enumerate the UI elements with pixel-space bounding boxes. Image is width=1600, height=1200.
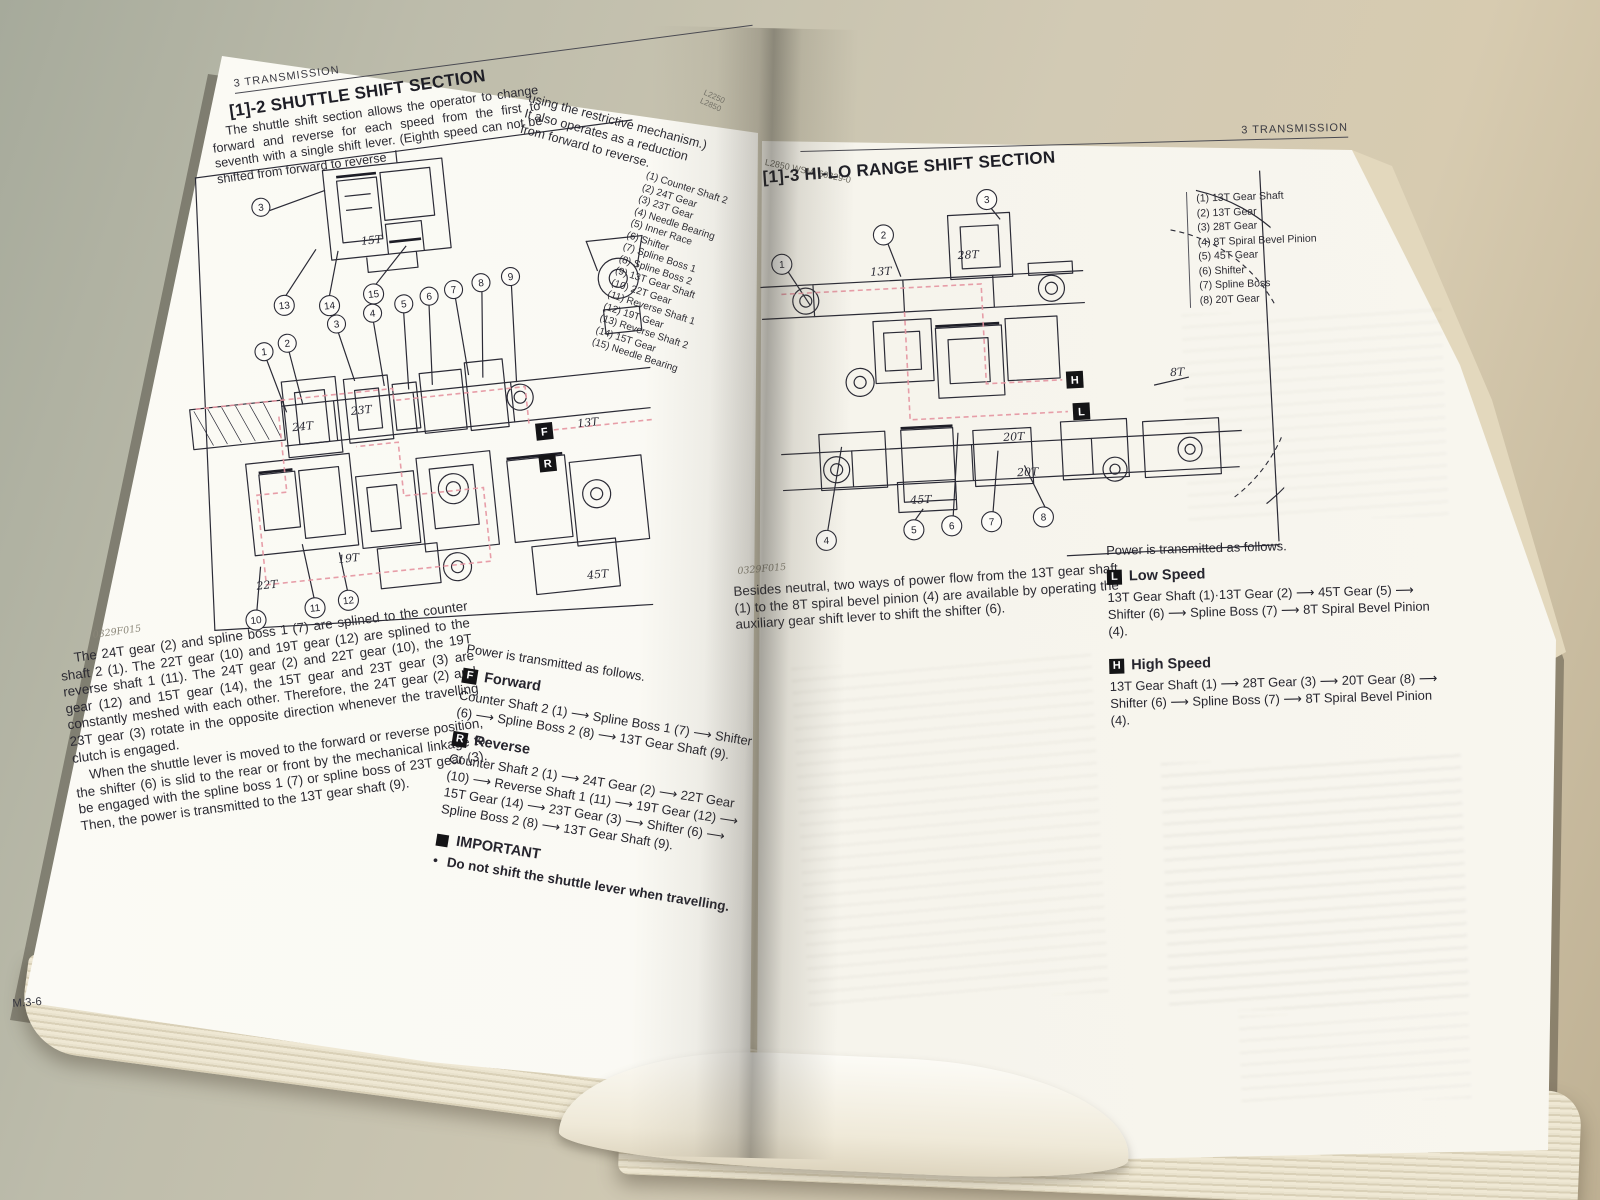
callout-6: 6	[941, 515, 962, 536]
left-page-number: M.3-6	[12, 996, 42, 1010]
badge-letter: R	[543, 458, 552, 471]
right-running-header: 3 TRANSMISSION	[1241, 122, 1348, 137]
power-flow-red-path	[781, 280, 1068, 426]
gear-label-8t: 8T	[1170, 365, 1187, 379]
callout-number: 8	[1040, 512, 1047, 523]
callout-7: 7	[981, 511, 1002, 532]
low-speed-badge: L	[1107, 570, 1122, 585]
gear-label-13t: 13T	[870, 265, 894, 279]
callout-5: 5	[394, 294, 414, 314]
bleed-through-text	[1161, 753, 1470, 1013]
gear-label-20t-upper: 20T	[1002, 430, 1027, 444]
bold-section-marks	[229, 157, 562, 485]
callout-number: 4	[823, 536, 830, 547]
callout-number: 1	[779, 260, 786, 271]
callout-15: 15	[363, 283, 385, 305]
callout-2: 2	[277, 333, 297, 353]
callout-number: 6	[949, 521, 956, 532]
callout-3-top: 3	[251, 197, 271, 217]
high-speed-chain: 13T Gear Shaft (1) ⟶ 28T Gear (3) ⟶ 20T …	[1110, 669, 1451, 729]
callout-number: 3	[984, 195, 991, 206]
callout-number: 11	[309, 603, 321, 615]
left-flow-column: Power is transmitted as follows. F Forwa…	[432, 640, 764, 915]
reverse-badge: R	[451, 731, 468, 748]
bleed-through-text	[791, 652, 1108, 1007]
callout-number: 7	[989, 517, 996, 528]
callout-5: 5	[903, 519, 924, 540]
callout-8: 8	[471, 273, 491, 293]
callout-13: 13	[273, 294, 295, 316]
callout-number: 5	[911, 525, 918, 536]
callout-number: 15	[368, 289, 381, 301]
callout-8: 8	[1033, 506, 1054, 527]
badge-letter: L	[1078, 406, 1086, 418]
gear-label-22t: 22T	[255, 577, 280, 592]
callout-7: 7	[444, 280, 464, 300]
callout-number: 13	[278, 300, 291, 312]
high-flow-badge: H	[1066, 371, 1084, 389]
gear-label-28t: 28T	[956, 248, 981, 262]
reverse-flow-badge: R	[538, 454, 557, 473]
callout-2: 2	[873, 224, 894, 245]
open-service-manual-photo: 3 TRANSMISSION [1]-2 SHUTTLE SHIFT SECTI…	[0, 0, 1600, 1200]
callout-9: 9	[501, 267, 521, 287]
callout-3: 3	[976, 189, 997, 210]
callout-number: 2	[880, 230, 887, 241]
gear-label-45t: 45T	[586, 567, 611, 582]
important-square-marker	[436, 833, 450, 847]
callout-4: 4	[816, 530, 837, 551]
high-speed-title: High Speed	[1131, 655, 1211, 674]
power-flow-red-path	[196, 362, 667, 590]
callout-11: 11	[304, 597, 326, 619]
bleed-through-text	[1238, 1008, 1471, 1106]
badge-letter: F	[540, 426, 548, 439]
right-parts-list: (1) 13T Gear Shaft (2) 13T Gear (3) 28T …	[1186, 185, 1382, 308]
callout-6: 6	[419, 286, 439, 306]
low-speed-chain: 13T Gear Shaft (1)·13T Gear (2) ⟶ 45T Ge…	[1107, 580, 1448, 640]
low-speed-title: Low Speed	[1129, 566, 1206, 585]
high-speed-badge: H	[1109, 659, 1124, 674]
callout-14: 14	[319, 295, 341, 317]
right-flow-column: Power is transmitted as follows. L Low S…	[1106, 533, 1451, 729]
callout-number: 14	[324, 301, 337, 313]
callout-1: 1	[771, 254, 792, 275]
forward-flow-badge: F	[535, 422, 554, 441]
shuttle-shift-cross-section: 3 13 14 15 1 2 3 4 5 6 7 8 9 10 11 12 15…	[156, 114, 701, 663]
callout-12: 12	[337, 589, 359, 611]
gear-label-20t-lower: 20T	[1016, 465, 1041, 479]
gear-label-24t: 24T	[290, 419, 315, 434]
callout-1: 1	[254, 342, 274, 362]
diagram-linework	[165, 126, 678, 628]
gear-label-23t: 23T	[349, 403, 374, 418]
callout-3: 3	[327, 314, 347, 334]
gear-label-19t: 19T	[337, 551, 361, 566]
callout-4: 4	[363, 303, 383, 323]
callout-number: 12	[342, 595, 355, 607]
spine-model-fragments: L2250 L2850	[699, 88, 727, 113]
left-running-header-row: 3 TRANSMISSION	[233, 10, 753, 94]
gear-label-45t: 45T	[909, 493, 934, 507]
badge-letter: H	[1071, 374, 1080, 386]
low-flow-badge: L	[1073, 402, 1091, 420]
gear-label-13t: 13T	[577, 415, 601, 430]
gear-label-15t: 15T	[360, 233, 384, 248]
forward-badge: F	[461, 668, 478, 685]
